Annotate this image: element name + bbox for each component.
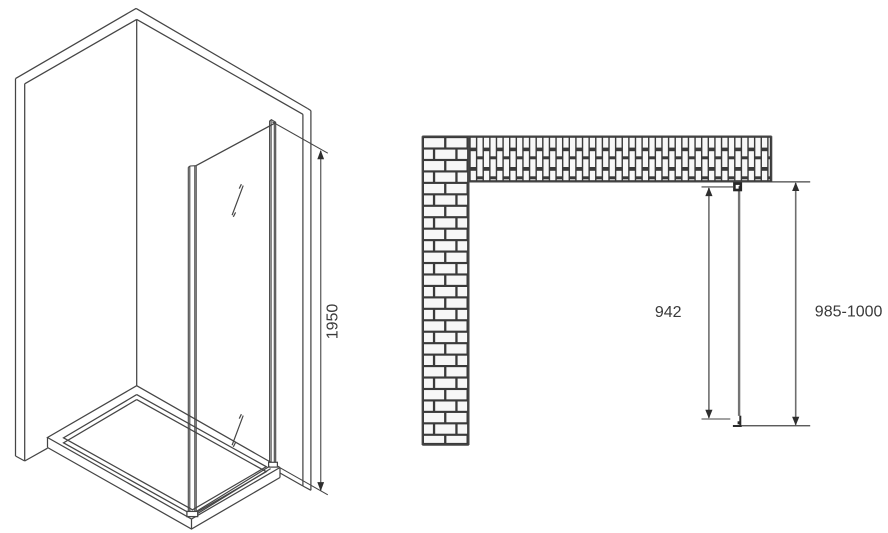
svg-text:942: 942 [655,304,682,321]
svg-text:985-1000: 985-1000 [815,303,883,320]
svg-text:1950: 1950 [324,304,341,340]
